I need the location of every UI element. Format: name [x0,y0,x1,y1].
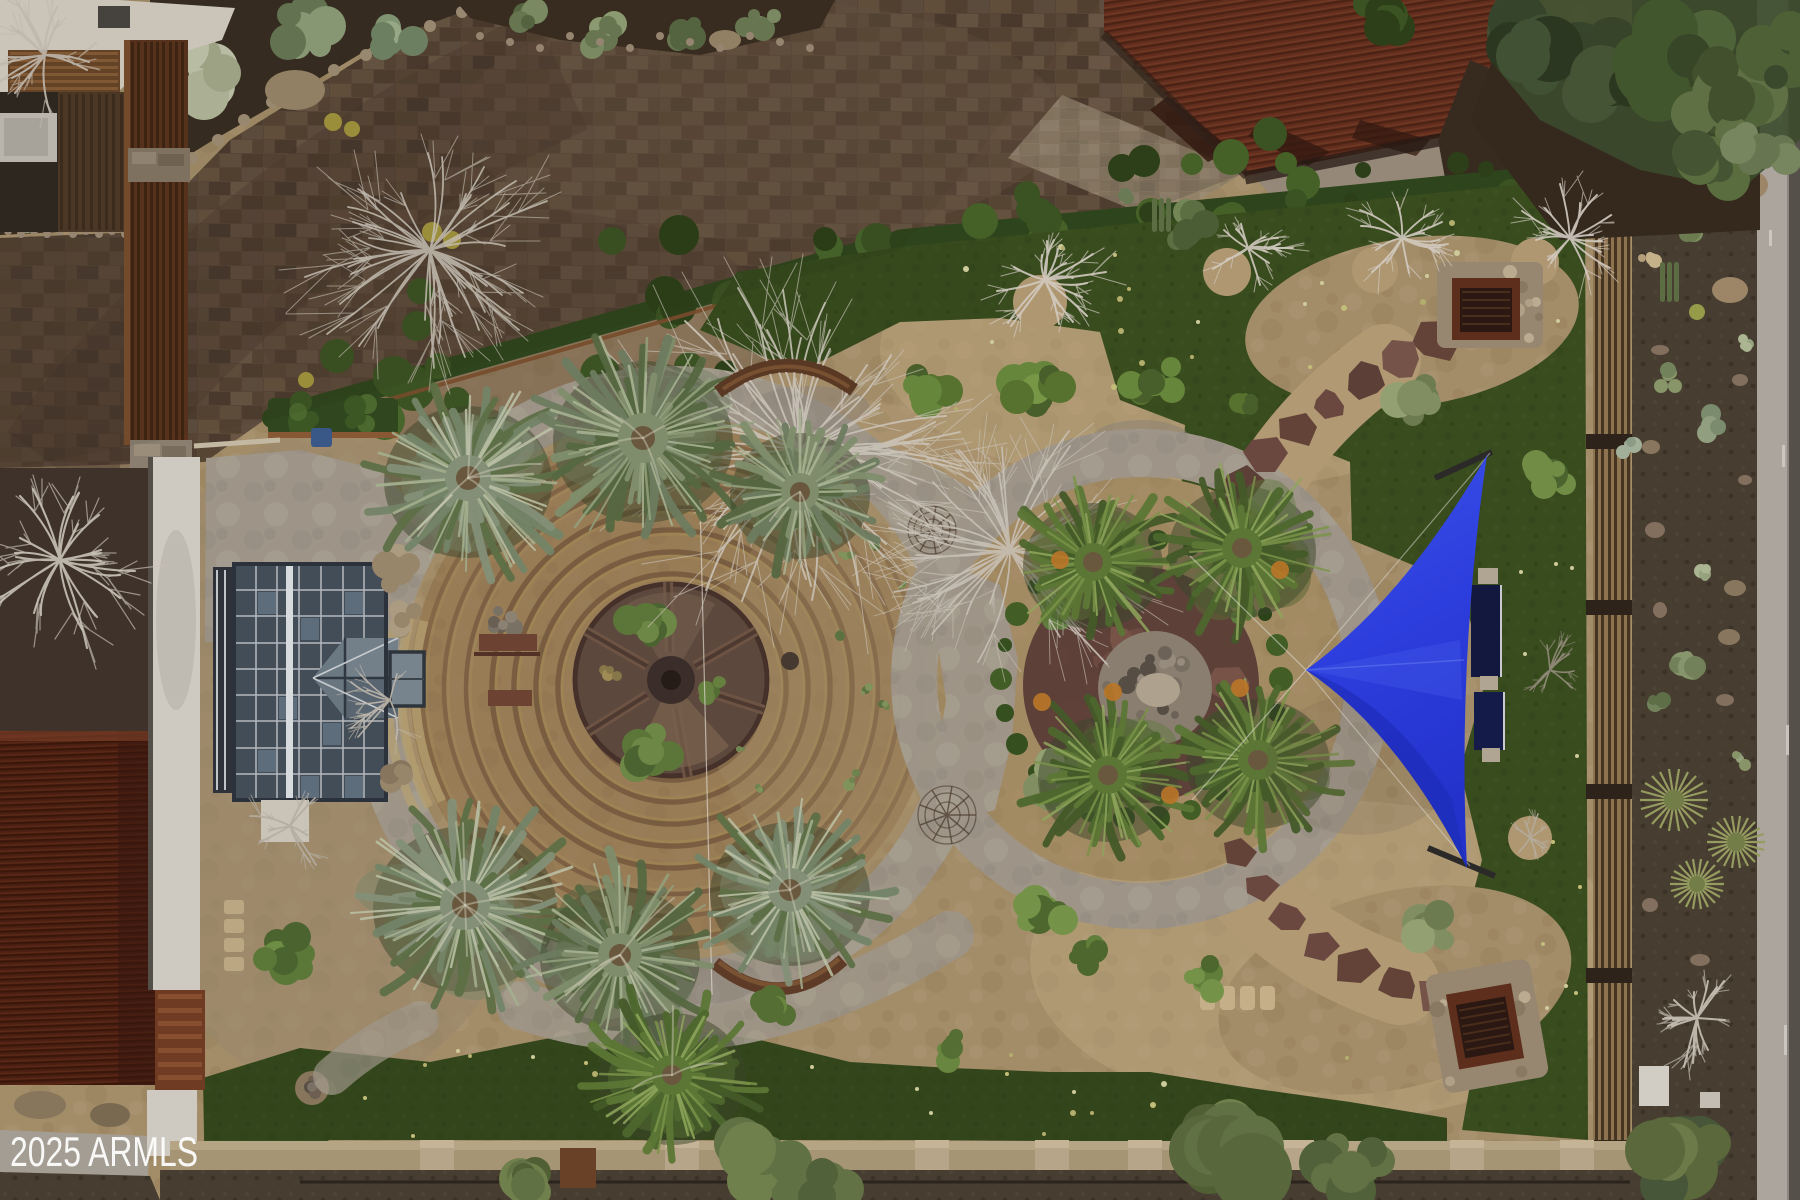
svg-text:2025 ARMLS: 2025 ARMLS [10,1128,198,1175]
